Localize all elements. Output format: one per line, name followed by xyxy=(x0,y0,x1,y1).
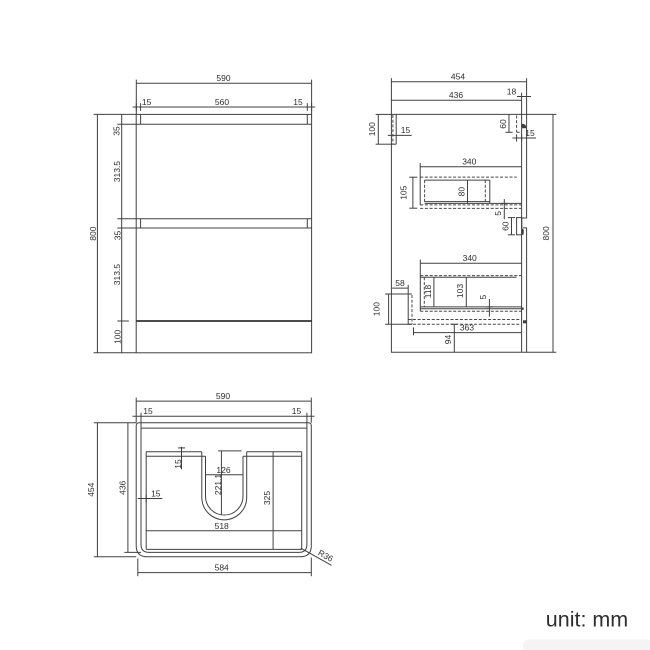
svg-text:15: 15 xyxy=(143,406,153,416)
svg-text:15: 15 xyxy=(401,125,411,135)
svg-text:unit: mm: unit: mm xyxy=(546,608,628,632)
svg-text:800: 800 xyxy=(541,226,551,240)
svg-text:80: 80 xyxy=(456,187,466,197)
svg-text:58: 58 xyxy=(395,278,405,288)
svg-text:60: 60 xyxy=(498,119,508,129)
svg-text:15: 15 xyxy=(293,97,303,107)
svg-text:105: 105 xyxy=(398,185,408,199)
svg-text:454: 454 xyxy=(86,482,96,496)
svg-text:221.1: 221.1 xyxy=(213,474,223,496)
svg-text:800: 800 xyxy=(88,226,98,240)
svg-text:15: 15 xyxy=(151,489,161,499)
svg-text:35: 35 xyxy=(112,231,122,241)
svg-text:18: 18 xyxy=(507,86,517,96)
svg-text:584: 584 xyxy=(215,563,229,573)
svg-text:15: 15 xyxy=(173,459,183,469)
svg-text:94: 94 xyxy=(443,335,453,345)
svg-text:126: 126 xyxy=(216,465,230,475)
svg-text:590: 590 xyxy=(216,391,230,401)
svg-text:518: 518 xyxy=(215,521,229,531)
svg-text:340: 340 xyxy=(463,253,477,263)
svg-text:590: 590 xyxy=(216,73,230,83)
svg-text:103: 103 xyxy=(455,284,465,298)
svg-text:313.5: 313.5 xyxy=(112,264,122,286)
svg-text:436: 436 xyxy=(117,480,127,494)
svg-text:100: 100 xyxy=(372,302,382,316)
svg-text:100: 100 xyxy=(367,122,377,136)
svg-text:100: 100 xyxy=(113,330,123,344)
svg-text:454: 454 xyxy=(451,72,465,82)
svg-text:436: 436 xyxy=(449,90,463,100)
svg-text:325: 325 xyxy=(262,491,272,505)
svg-text:35: 35 xyxy=(112,126,122,136)
svg-text:15: 15 xyxy=(292,406,302,416)
svg-text:363: 363 xyxy=(460,323,474,333)
svg-text:5: 5 xyxy=(493,211,503,216)
svg-text:15: 15 xyxy=(142,97,152,107)
svg-text:560: 560 xyxy=(215,97,229,107)
svg-text:340: 340 xyxy=(462,157,476,167)
svg-text:313.5: 313.5 xyxy=(112,161,122,183)
svg-text:15: 15 xyxy=(525,128,535,138)
svg-text:118: 118 xyxy=(423,284,433,298)
svg-text:5: 5 xyxy=(478,295,488,300)
svg-text:R36: R36 xyxy=(316,548,335,564)
svg-text:60: 60 xyxy=(500,221,510,231)
